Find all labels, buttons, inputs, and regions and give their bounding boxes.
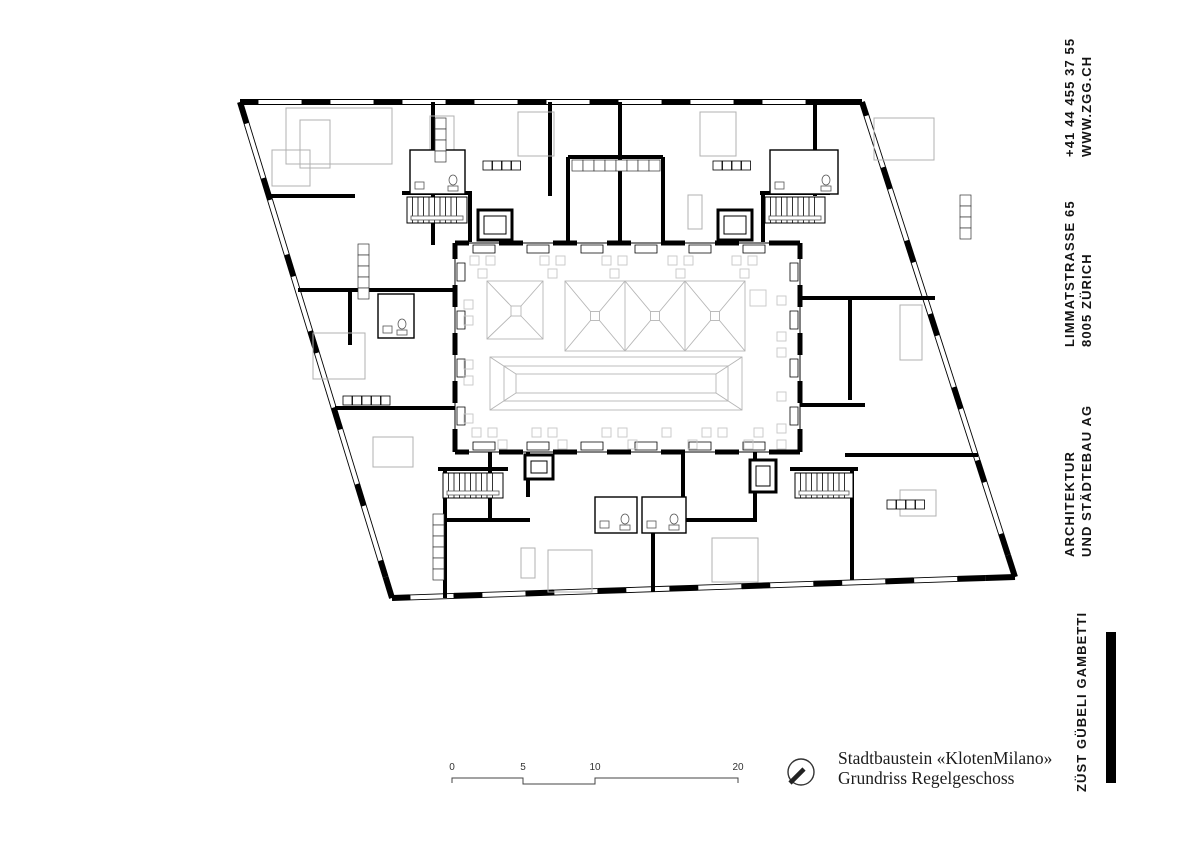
scale-label-0: 0	[449, 762, 455, 773]
scale-label-10: 10	[589, 762, 600, 773]
firm-type-block: ARCHITEKTUR UND STÄDTEBAU AG	[1062, 425, 1096, 557]
website: WWW.ZGG.CH	[1079, 27, 1096, 157]
phone-number: +41 44 455 37 55	[1062, 27, 1079, 157]
floor-plan	[240, 100, 1015, 600]
city-address: 8005 ZÜRICH	[1079, 208, 1096, 347]
title-block: Stadtbaustein «KlotenMilano» Grundriss R…	[838, 748, 1052, 788]
firm-logo-bar	[1106, 632, 1116, 783]
street-address: LIMMATSTRASSE 65	[1062, 208, 1079, 347]
scale-label-5: 5	[520, 762, 526, 773]
courtyard-skylights	[487, 281, 745, 410]
drawing-subtitle: Grundriss Regelgeschoss	[838, 768, 1052, 788]
scale-bar-line	[452, 778, 738, 784]
scale-bar	[452, 778, 738, 784]
firm-type-line1: ARCHITEKTUR	[1062, 425, 1079, 557]
contact-block: +41 44 455 37 55 WWW.ZGG.CH	[1062, 27, 1096, 157]
address-block: LIMMATSTRASSE 65 8005 ZÜRICH	[1062, 208, 1096, 347]
firm-type-line2: UND STÄDTEBAU AG	[1079, 425, 1096, 557]
firm-name: ZÜST GÜBELI GAMBETTI	[1074, 628, 1090, 792]
project-title: Stadtbaustein «KlotenMilano»	[838, 748, 1052, 768]
scale-label-20: 20	[732, 762, 743, 773]
floor-plan-drawing	[0, 0, 1200, 849]
north-arrow-icon	[788, 759, 814, 785]
